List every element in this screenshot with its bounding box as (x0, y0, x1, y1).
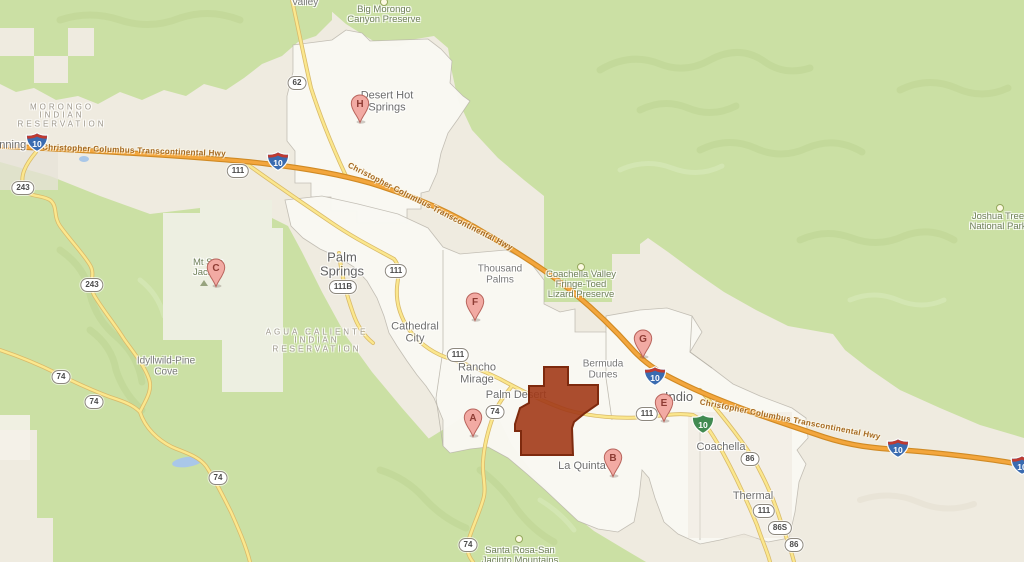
svg-text:H: H (356, 99, 363, 110)
marker-pin-a[interactable]: A (463, 408, 483, 443)
svg-text:C: C (212, 263, 219, 274)
map-canvas[interactable]: ValleyBig MorongoCanyon PreserveMORONGOI… (0, 0, 1024, 562)
svg-text:G: G (639, 334, 647, 345)
svg-text:F: F (472, 297, 478, 308)
svg-text:B: B (609, 453, 616, 464)
map-base-terrain (0, 0, 1024, 562)
marker-pin-f[interactable]: F (465, 292, 485, 327)
marker-pin-c[interactable]: C (206, 258, 226, 293)
marker-pin-e[interactable]: E (654, 393, 674, 428)
svg-text:E: E (661, 398, 668, 409)
marker-pin-h[interactable]: H (350, 94, 370, 129)
marker-pin-b[interactable]: B (603, 448, 623, 483)
svg-text:A: A (469, 413, 476, 424)
marker-pin-g[interactable]: G (633, 329, 653, 364)
